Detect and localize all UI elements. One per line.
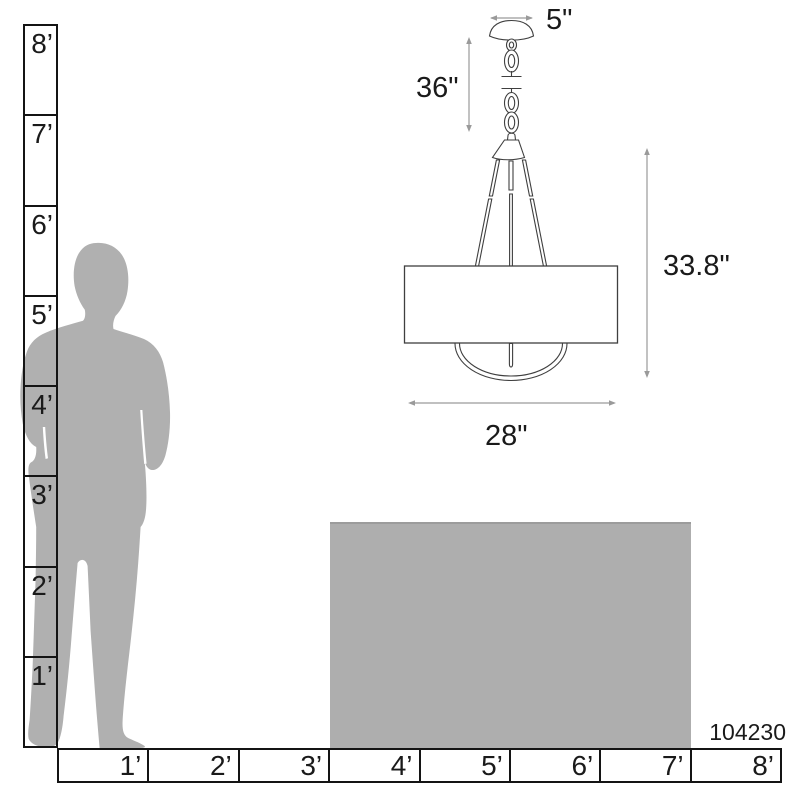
vertical-ruler: 8’ 7’ 6’ 5’ 4’ 3’ 2’ 1’ (23, 24, 58, 748)
scale-diagram: 8’ 7’ 6’ 5’ 4’ 3’ 2’ 1’ 1’ 2’ 3’ 4’ 5’ 6… (0, 0, 800, 800)
horizontal-ruler-cell: 6’ (511, 750, 601, 781)
vertical-ruler-cell: 2’ (25, 568, 56, 658)
fixture-width-label: 28" (485, 422, 528, 451)
canopy-width-label: 5" (546, 6, 572, 35)
horizontal-ruler-cell: 4’ (330, 750, 420, 781)
horizontal-ruler: 1’ 2’ 3’ 4’ 5’ 6’ 7’ 8’ (57, 748, 782, 783)
vertical-ruler-cell: 8’ (25, 26, 56, 116)
chain-length-label: 36" (416, 74, 459, 103)
fixture-height-label: 33.8" (663, 252, 730, 281)
ruler-label: 1’ (31, 660, 53, 691)
cone (493, 140, 525, 160)
vertical-ruler-cell: 6’ (25, 207, 56, 297)
ruler-label: 8’ (752, 752, 774, 780)
table-block (330, 522, 691, 748)
ruler-label: 3’ (300, 752, 322, 780)
ruler-label: 5’ (31, 299, 53, 330)
ruler-label: 7’ (662, 752, 684, 780)
drum-shade (405, 266, 618, 343)
ruler-label: 6’ (31, 209, 53, 240)
ruler-label: 4’ (391, 752, 413, 780)
horizontal-ruler-cell: 3’ (240, 750, 330, 781)
fixture-width-arrow (408, 400, 616, 406)
vertical-ruler-cell: 3’ (25, 477, 56, 567)
ruler-label: 5’ (481, 752, 503, 780)
ruler-label: 1’ (120, 752, 142, 780)
product-number: 104230 (646, 721, 786, 744)
vertical-ruler-cell: 1’ (25, 658, 56, 746)
ruler-label: 4’ (31, 389, 53, 420)
chain-length-arrow (466, 37, 472, 132)
ruler-label: 2’ (31, 570, 53, 601)
vertical-ruler-cell: 7’ (25, 116, 56, 206)
horizontal-ruler-cell: 7’ (601, 750, 691, 781)
ruler-label: 6’ (571, 752, 593, 780)
ruler-label: 3’ (31, 479, 53, 510)
horizontal-ruler-cell: 2’ (149, 750, 239, 781)
horizontal-ruler-cell: 5’ (421, 750, 511, 781)
ruler-label: 2’ (210, 752, 232, 780)
horizontal-ruler-cell: 1’ (59, 750, 149, 781)
canopy (490, 21, 534, 41)
vertical-ruler-cell: 5’ (25, 297, 56, 387)
ruler-label: 8’ (31, 28, 53, 59)
fixture-height-arrow (644, 148, 650, 378)
horizontal-ruler-cell: 8’ (692, 750, 780, 781)
ruler-label: 7’ (31, 118, 53, 149)
vertical-ruler-cell: 4’ (25, 387, 56, 477)
